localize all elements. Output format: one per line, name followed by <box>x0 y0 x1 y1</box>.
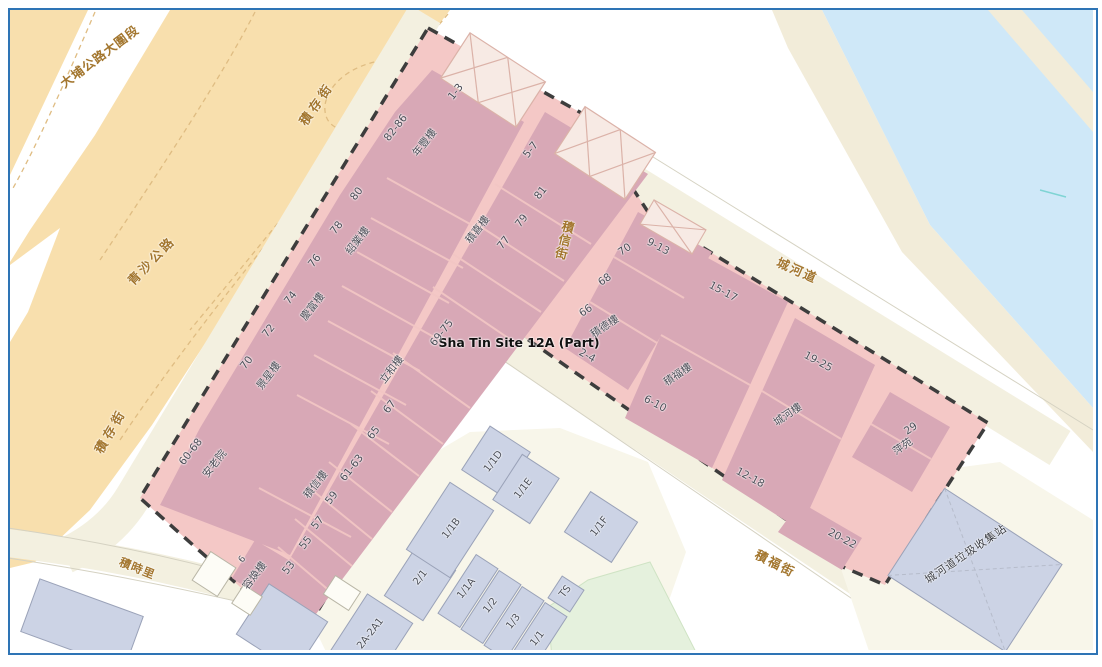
frame-mask-right <box>1093 0 1102 667</box>
map-figure: 大埔公路大圍段 青沙公路 積存街 積存街 積信街 城河道 積福街 積時里 Sha… <box>0 0 1102 667</box>
site-area-label: Sha Tin Site 12A (Part) <box>438 337 599 350</box>
frame-mask-bottom <box>0 650 1102 667</box>
frame-mask-top <box>0 0 1102 9</box>
frame-mask-left <box>0 0 9 667</box>
